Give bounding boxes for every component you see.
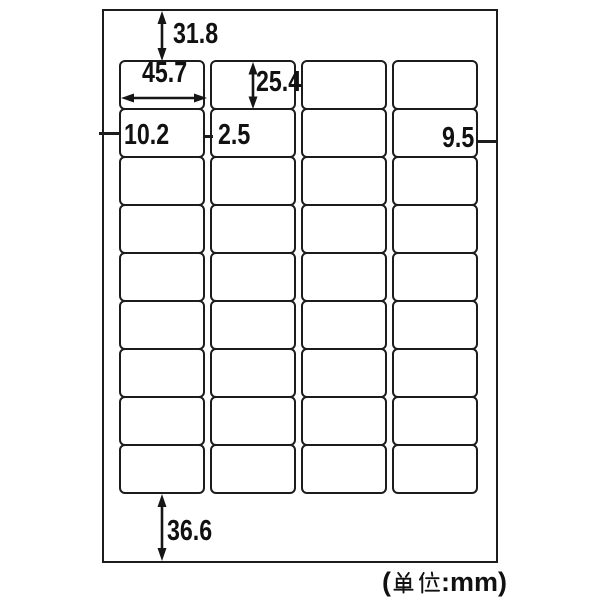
label-cell bbox=[392, 396, 478, 446]
label-cell bbox=[301, 60, 387, 110]
label-cell bbox=[210, 252, 296, 302]
label-sheet-dimension-diagram: 31.8 45.7 25.4 10.2 2.5 9.5 36.6 ( bbox=[0, 0, 600, 600]
label-cell bbox=[119, 348, 205, 398]
label-cell bbox=[392, 300, 478, 350]
right-margin-tick bbox=[477, 140, 497, 143]
dim-left-margin: 10.2 bbox=[124, 121, 169, 150]
dim-label-height: 25.4 bbox=[256, 68, 301, 97]
label-cell bbox=[392, 60, 478, 110]
label-cell bbox=[119, 300, 205, 350]
label-cell bbox=[210, 444, 296, 494]
label-cell bbox=[392, 348, 478, 398]
label-cell bbox=[119, 252, 205, 302]
label-cell bbox=[119, 396, 205, 446]
label-cell bbox=[210, 204, 296, 254]
label-cell bbox=[301, 108, 387, 158]
unit-note: ( :mm) bbox=[382, 567, 507, 597]
kanji-i-icon bbox=[417, 571, 440, 594]
label-cell bbox=[210, 300, 296, 350]
label-cell bbox=[119, 156, 205, 206]
top-margin-arrow-icon bbox=[153, 11, 171, 61]
dim-bottom-margin: 36.6 bbox=[167, 517, 212, 546]
label-cell bbox=[210, 396, 296, 446]
label-cell bbox=[210, 348, 296, 398]
label-width-arrow-icon bbox=[121, 91, 207, 105]
dim-column-gap: 2.5 bbox=[218, 121, 250, 150]
column-gap-tick bbox=[204, 135, 213, 138]
dim-top-margin: 31.8 bbox=[173, 20, 218, 49]
unit-note-prefix: ( bbox=[382, 567, 391, 597]
left-margin-tick bbox=[99, 132, 120, 135]
label-cell bbox=[301, 156, 387, 206]
label-cell bbox=[301, 204, 387, 254]
kanji-tan-icon bbox=[392, 571, 415, 594]
label-cell bbox=[210, 156, 296, 206]
label-cell bbox=[392, 444, 478, 494]
label-cell bbox=[392, 156, 478, 206]
dim-label-width: 45.7 bbox=[142, 59, 187, 88]
unit-note-suffix: :mm) bbox=[441, 567, 507, 597]
label-cell bbox=[119, 204, 205, 254]
label-cell bbox=[392, 252, 478, 302]
dim-right-margin: 9.5 bbox=[442, 124, 474, 153]
label-cell bbox=[301, 348, 387, 398]
label-cell bbox=[392, 204, 478, 254]
label-cell bbox=[301, 300, 387, 350]
label-cell bbox=[301, 396, 387, 446]
label-cell bbox=[119, 444, 205, 494]
label-grid bbox=[119, 60, 489, 505]
label-cell bbox=[301, 252, 387, 302]
label-cell bbox=[301, 444, 387, 494]
